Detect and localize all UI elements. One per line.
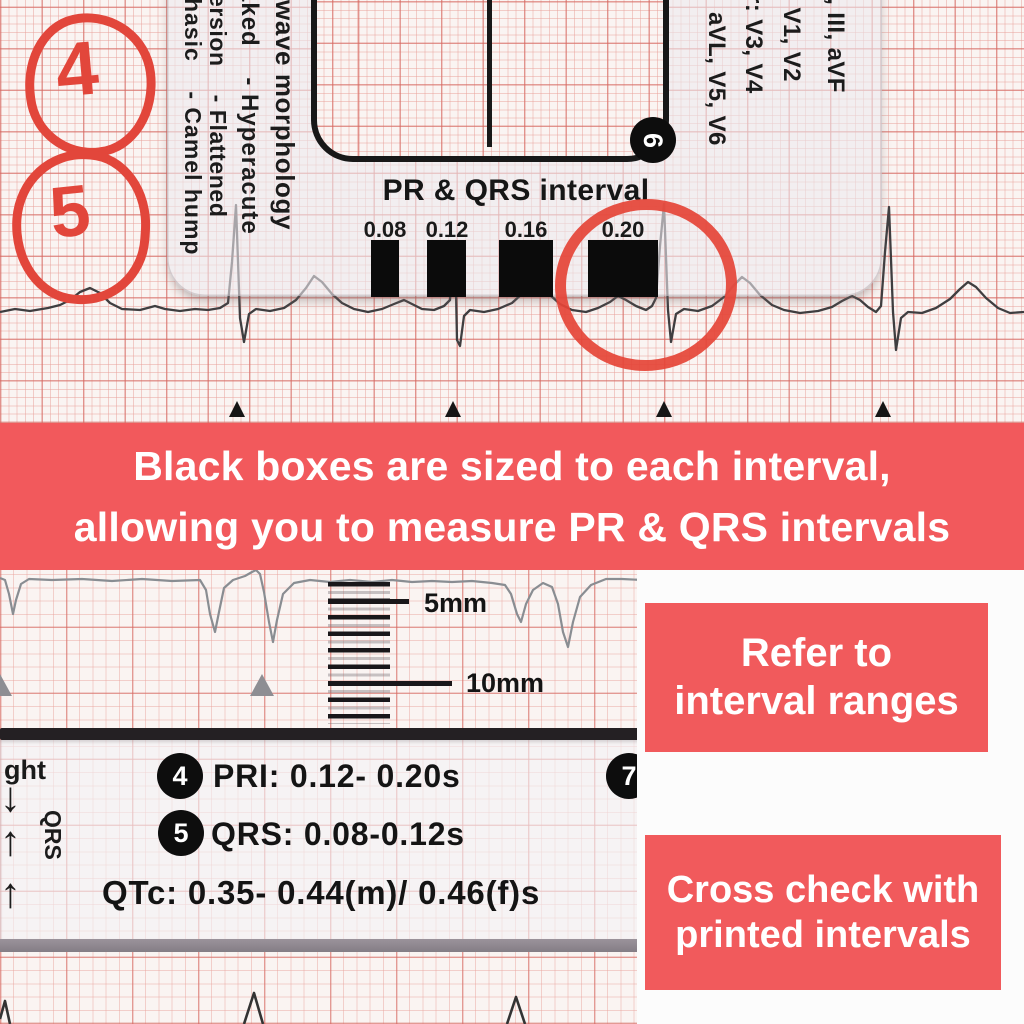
morphology-column-hyperacute: aked - Hyperacute (235, 0, 263, 235)
instruction-banner: Black boxes are sized to each interval, … (0, 423, 1024, 570)
five-mm-label: 5mm (424, 588, 487, 619)
handwritten-digit-4: 4 (53, 30, 102, 109)
beat-marker-triangle (656, 401, 672, 417)
beat-marker-triangle (445, 401, 461, 417)
arrow-up-icon: ↑ (0, 872, 18, 914)
qrs-interval-text: QRS: 0.08-0.12s (211, 816, 465, 853)
pri-interval-text: PRI: 0.12- 0.20s (213, 758, 461, 795)
qtc-interval-text: QTc: 0.35- 0.44(m)/ 0.46(f)s (102, 874, 540, 912)
lead-column-lateral: aVL, V5, V6 (702, 12, 730, 146)
interval-box-008 (371, 240, 399, 297)
ten-mm-tick-line (328, 681, 452, 686)
beat-marker-triangle (229, 401, 245, 417)
five-mm-tick-line (328, 599, 409, 604)
step-badge-4: 4 (157, 753, 203, 799)
ten-mm-label: 10mm (466, 668, 544, 699)
lead-column-septal: : V1, V2 (777, 0, 805, 82)
step-badge-6-label: 6 (638, 132, 669, 147)
handwritten-digit-5: 5 (46, 174, 93, 250)
lead-column-anterior: r: V3, V4 (739, 0, 767, 94)
step-badge-5: 5 (158, 810, 204, 856)
gray-marker-triangle (250, 674, 274, 696)
banner-line-2: allowing you to measure PR & QRS interva… (74, 504, 950, 551)
beat-marker-triangle (875, 401, 891, 417)
morphology-column-camel-hump: hasic - Camel hump (179, 0, 206, 255)
step-badge-6: 6 (630, 117, 676, 163)
refer-note-box: Refer to interval ranges (645, 603, 988, 752)
morphology-column-title: wave morphology (269, 0, 300, 230)
top-photo-section: 6 wave morphology aked - Hyperacute ersi… (0, 0, 1024, 423)
arrow-down-icon: ↓ (0, 776, 18, 818)
arrow-up-icon: ↑ (0, 820, 18, 862)
lead-column-inferior: II, III, aVF (821, 0, 849, 93)
ruler-bottom-edge-line (0, 939, 642, 952)
window-divider-line (487, 0, 492, 147)
gray-marker-triangle (0, 674, 12, 696)
qrs-vertical-label: QRS (39, 810, 66, 860)
refer-note-line-1: Refer to (741, 630, 892, 677)
cross-check-note-box: Cross check with printed intervals (645, 835, 1001, 990)
interval-box-016 (499, 240, 553, 297)
side-note-panel: Refer to interval ranges Cross check wit… (637, 570, 1024, 1024)
interval-box-012 (427, 240, 466, 297)
morphology-column-flattened: ersion - Flattened (204, 0, 231, 217)
cross-check-line-1: Cross check with (667, 868, 980, 913)
ecg-ruler-instructional-image: 6 wave morphology aked - Hyperacute ersi… (0, 0, 1024, 1024)
banner-line-1: Black boxes are sized to each interval, (133, 443, 891, 490)
ruler-top-edge-line (0, 728, 642, 740)
refer-note-line-2: interval ranges (674, 678, 959, 725)
cross-check-line-2: printed intervals (675, 913, 971, 958)
